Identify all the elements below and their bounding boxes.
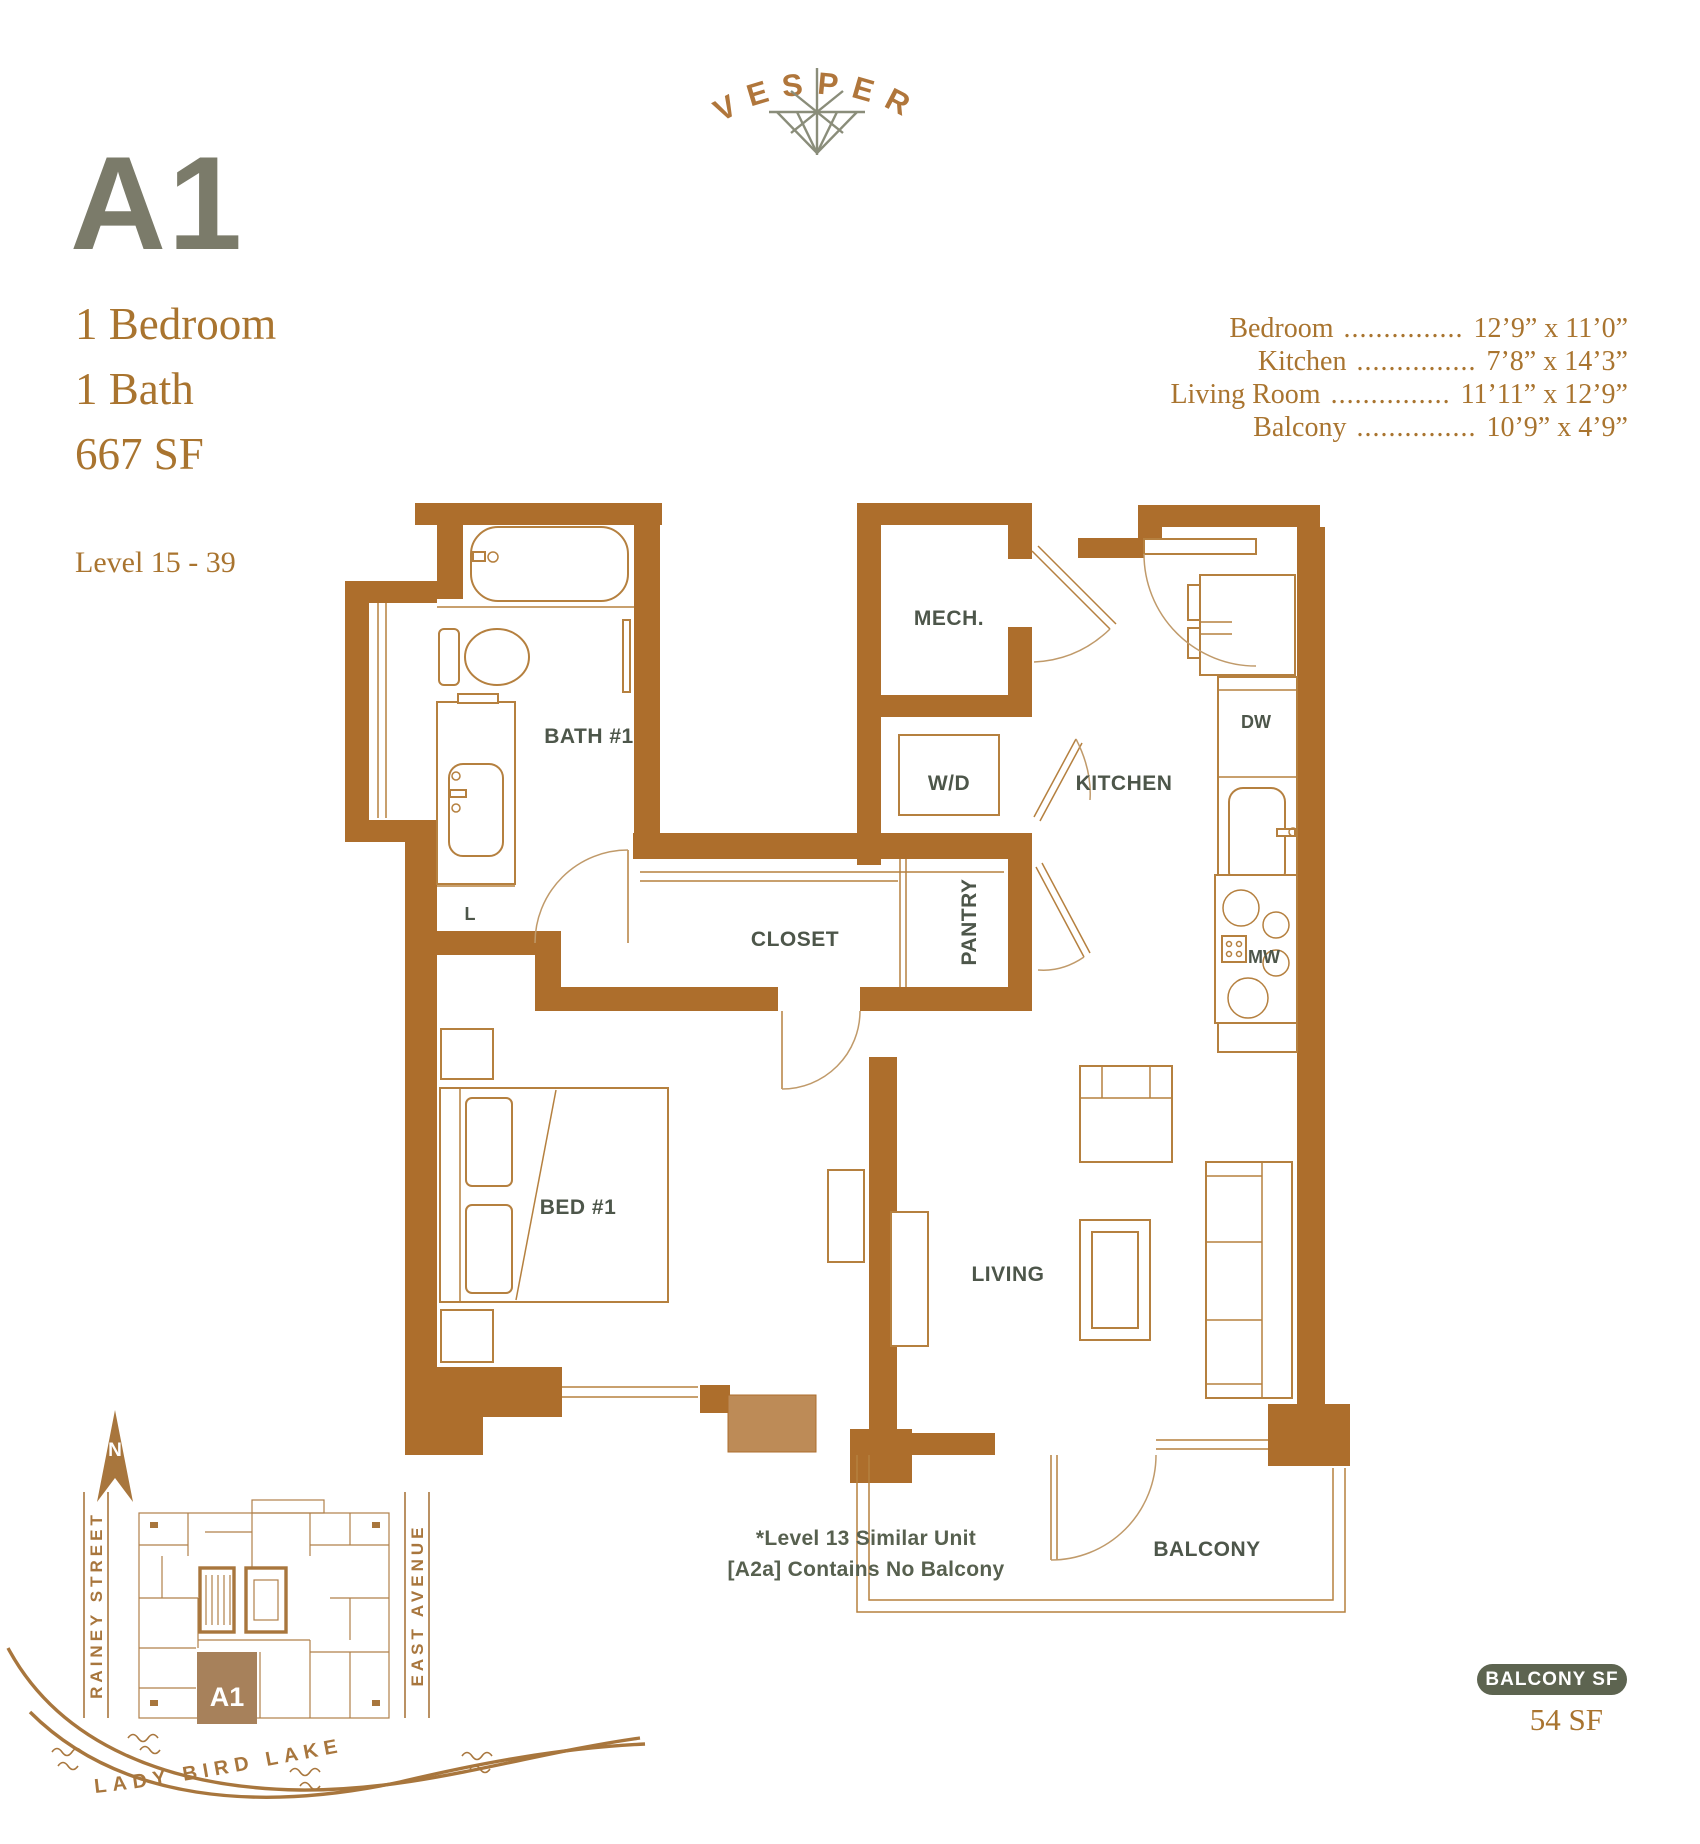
tub-faucet-icon bbox=[473, 552, 485, 561]
refrigerator bbox=[1188, 575, 1295, 675]
kitchen-fixtures bbox=[899, 575, 1297, 1052]
floorplan-sheet: A1 1 Bedroom 1 Bath 667 SF Level 15 - 39… bbox=[0, 0, 1700, 1844]
room-label-pantry: PANTRY bbox=[958, 879, 981, 966]
media-console bbox=[891, 1212, 928, 1346]
brand-logo: VESPER bbox=[697, 66, 938, 155]
nightstand bbox=[441, 1310, 493, 1362]
room-label-bath: BATH #1 bbox=[544, 725, 633, 748]
note-line-2: [A2a] Contains No Balcony bbox=[727, 1558, 1004, 1581]
site-map: N RAINEY STREET EAST AVENUE bbox=[8, 1410, 645, 1798]
unit-marker-label: A1 bbox=[210, 1682, 245, 1712]
north-arrow-icon: N bbox=[97, 1410, 133, 1502]
room-label-wd: W/D bbox=[928, 772, 970, 795]
plan-canvas: VESPER bbox=[0, 0, 1700, 1844]
room-label-balcony: BALCONY bbox=[1153, 1538, 1260, 1561]
room-label-kitchen: KITCHEN bbox=[1076, 772, 1173, 795]
room-label-living: LIVING bbox=[971, 1263, 1044, 1286]
coffee-table bbox=[1080, 1220, 1150, 1340]
north-label: N bbox=[108, 1440, 122, 1461]
building-plate: A1 bbox=[139, 1500, 389, 1724]
sofa bbox=[1206, 1162, 1292, 1398]
mech-door bbox=[1032, 546, 1116, 662]
vanity-sink bbox=[437, 694, 515, 884]
appliance-label-dw: DW bbox=[1241, 712, 1271, 732]
bedroom-furniture bbox=[440, 1029, 864, 1362]
bath-door bbox=[535, 850, 628, 943]
building-core bbox=[200, 1568, 286, 1632]
note-line-1: *Level 13 Similar Unit bbox=[756, 1527, 976, 1550]
room-label-bed: BED #1 bbox=[540, 1196, 617, 1219]
street-label-east-avenue: EAST AVENUE bbox=[408, 1523, 427, 1686]
bedroom-door bbox=[782, 1011, 860, 1089]
plan-note: *Level 13 Similar Unit [A2a] Contains No… bbox=[727, 1527, 1004, 1581]
bath-fixtures bbox=[437, 527, 634, 886]
structural-column bbox=[728, 1395, 816, 1452]
towel-bar bbox=[623, 620, 630, 692]
appliance-label-mw: MW bbox=[1248, 947, 1280, 967]
bathtub bbox=[471, 527, 628, 601]
street-label-rainey: RAINEY STREET bbox=[87, 1511, 106, 1699]
closet-details bbox=[640, 859, 1004, 987]
bedroom-console bbox=[828, 1170, 864, 1262]
nightstand bbox=[441, 1029, 493, 1079]
bed bbox=[440, 1088, 668, 1302]
room-label-mech: MECH. bbox=[914, 607, 984, 630]
living-furniture bbox=[891, 1066, 1292, 1398]
balcony-door bbox=[1051, 1455, 1156, 1560]
pantry-door bbox=[1036, 863, 1090, 970]
unit-location-marker: A1 bbox=[197, 1652, 257, 1724]
toilet bbox=[439, 629, 529, 685]
armchair bbox=[1080, 1066, 1172, 1162]
room-label-linen: L bbox=[465, 904, 476, 924]
room-label-closet: CLOSET bbox=[751, 928, 839, 951]
